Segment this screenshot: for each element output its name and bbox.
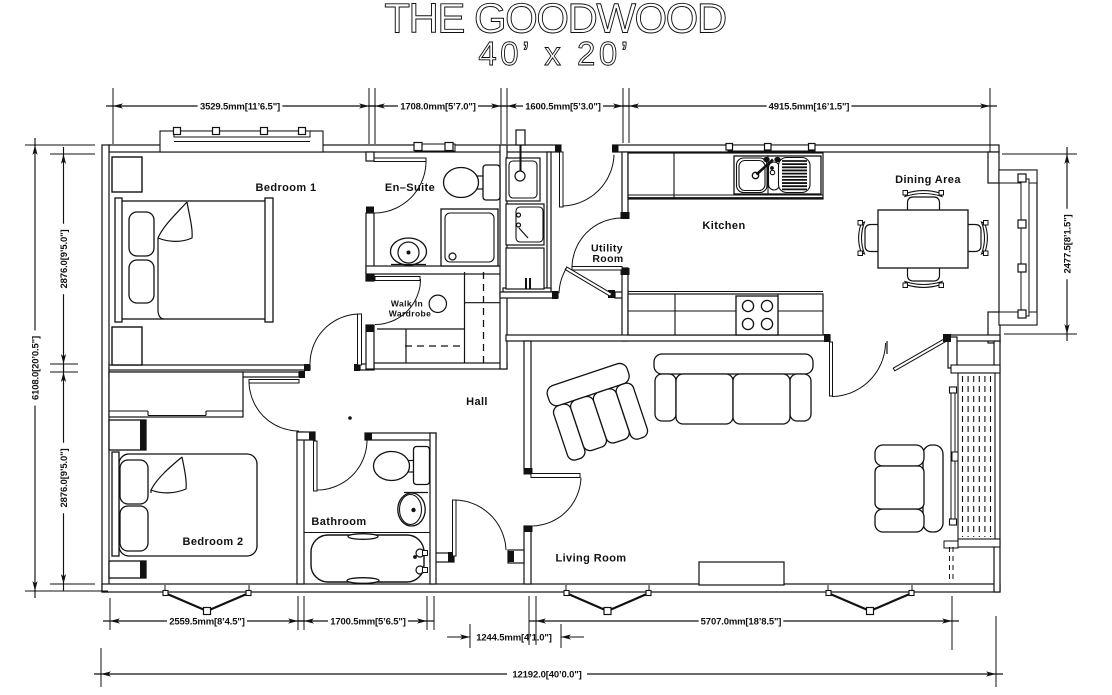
svg-text:1708.0mm[5’7.0"]: 1708.0mm[5’7.0"] [400,101,476,112]
svg-text:2477.5[8’1.5"]: 2477.5[8’1.5"] [1062,215,1073,274]
svg-text:5707.0mm[18’8.5"]: 5707.0mm[18’8.5"] [701,616,782,627]
svg-text:1600.5mm[5’3.0"]: 1600.5mm[5’3.0"] [525,101,601,112]
svg-text:6108.0[20’0.5"]: 6108.0[20’0.5"] [30,336,41,400]
svg-text:Bathroom: Bathroom [311,516,366,528]
svg-text:1700.5mm[5’6.5"]: 1700.5mm[5’6.5"] [330,616,406,627]
svg-text:Hall: Hall [466,396,488,408]
svg-text:Wardrobe: Wardrobe [389,309,432,319]
svg-text:12192.0[40’0.0"]: 12192.0[40’0.0"] [512,669,581,680]
svg-text:Bedroom 2: Bedroom 2 [182,536,243,548]
svg-text:2559.5mm[8’4.5"]: 2559.5mm[8’4.5"] [169,616,245,627]
svg-text:Bedroom 1: Bedroom 1 [255,182,316,194]
svg-text:3529.5mm[11’6.5"]: 3529.5mm[11’6.5"] [200,101,280,112]
svg-text:En–Suite: En–Suite [385,182,435,194]
svg-text:Living Room: Living Room [555,553,626,565]
svg-text:Room: Room [592,253,623,265]
svg-text:2876.0[9’5.0"]: 2876.0[9’5.0"] [59,230,70,289]
svg-text:Walk In: Walk In [391,299,423,309]
svg-text:Dining Area: Dining Area [895,174,961,186]
svg-text:40’ x 20’: 40’ x 20’ [478,35,631,72]
svg-text:4915.5mm[16’1.5"]: 4915.5mm[16’1.5"] [769,101,850,112]
svg-text:1244.5mm[4’1.0"]: 1244.5mm[4’1.0"] [476,633,552,644]
svg-text:2876.0[9’5.0"]: 2876.0[9’5.0"] [59,449,70,508]
svg-text:Kitchen: Kitchen [702,220,745,232]
